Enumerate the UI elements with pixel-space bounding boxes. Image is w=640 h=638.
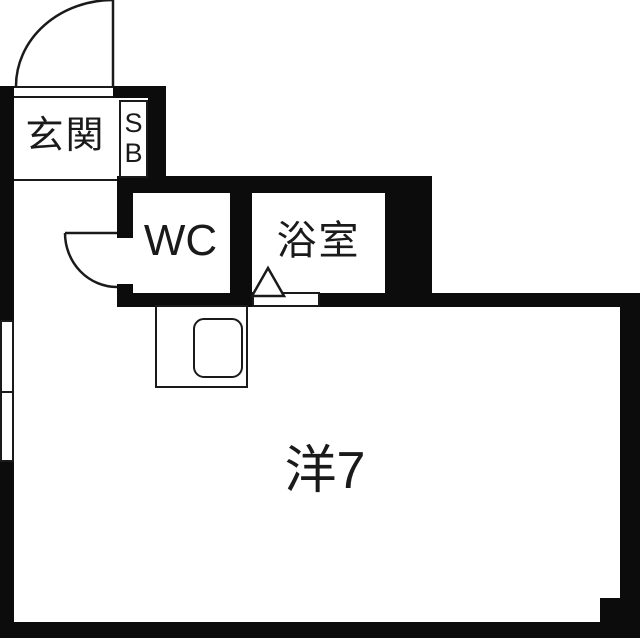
shoebox-letter-b: B: [124, 139, 142, 169]
entrance-door-swing-arc: [16, 0, 113, 86]
wall-left-upper: [0, 86, 14, 322]
kitchen-sink: [193, 318, 243, 378]
floorplan: S B 玄関 WC 浴室 洋7: [0, 0, 640, 638]
wall-bath-east: [385, 176, 432, 307]
wall-left-lower: [0, 460, 14, 638]
wall-bottom: [0, 622, 640, 638]
bath-label: 浴室: [252, 221, 385, 261]
window-divider-line: [2, 391, 12, 393]
wall-right: [620, 293, 640, 638]
wc-label: WC: [131, 219, 230, 263]
wc-door-swing-arc: [65, 233, 117, 287]
shoebox-letter-s: S: [124, 109, 142, 139]
wall-corner-step: [600, 598, 624, 626]
genkan-label: 玄関: [14, 117, 117, 155]
wall-right-of-shoebox: [148, 86, 166, 182]
bath-threshold: [252, 292, 320, 307]
shoebox: S B: [119, 100, 148, 178]
wall-wc-bath-divider: [230, 190, 252, 302]
living-room-label: 洋7: [245, 445, 405, 497]
window-left: [0, 320, 14, 462]
genkan-step-line: [14, 179, 117, 181]
entrance-sill: [14, 86, 113, 98]
